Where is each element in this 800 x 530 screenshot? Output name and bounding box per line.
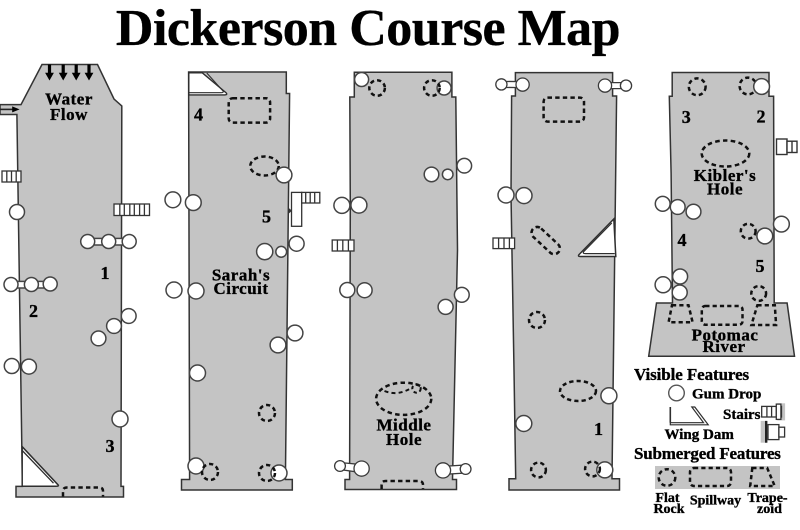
svg-text:1: 1 (101, 263, 110, 283)
svg-text:Dickerson Course Map: Dickerson Course Map (116, 0, 620, 57)
svg-text:Hole: Hole (707, 180, 743, 199)
svg-text:5: 5 (262, 207, 271, 227)
svg-text:Submerged Features: Submerged Features (634, 444, 781, 463)
svg-text:Flow: Flow (50, 105, 88, 124)
svg-text:Hole: Hole (386, 430, 422, 449)
svg-text:2: 2 (29, 301, 38, 321)
svg-text:Stairs: Stairs (723, 407, 761, 423)
svg-text:4: 4 (678, 230, 687, 250)
svg-text:1: 1 (594, 419, 603, 439)
svg-text:Gum Drop: Gum Drop (692, 387, 761, 403)
svg-text:Wing Dam: Wing Dam (665, 427, 735, 443)
svg-text:4: 4 (194, 105, 203, 125)
svg-text:zoid: zoid (757, 502, 782, 517)
svg-text:3: 3 (682, 107, 691, 127)
svg-text:2: 2 (757, 107, 766, 127)
svg-text:5: 5 (756, 256, 765, 276)
svg-text:Circuit: Circuit (213, 279, 268, 298)
svg-text:Visible Features: Visible Features (634, 365, 750, 384)
svg-text:Rock: Rock (653, 502, 684, 517)
svg-text:River: River (702, 337, 745, 356)
svg-text:Spillway: Spillway (690, 494, 741, 509)
svg-text:3: 3 (106, 436, 115, 456)
